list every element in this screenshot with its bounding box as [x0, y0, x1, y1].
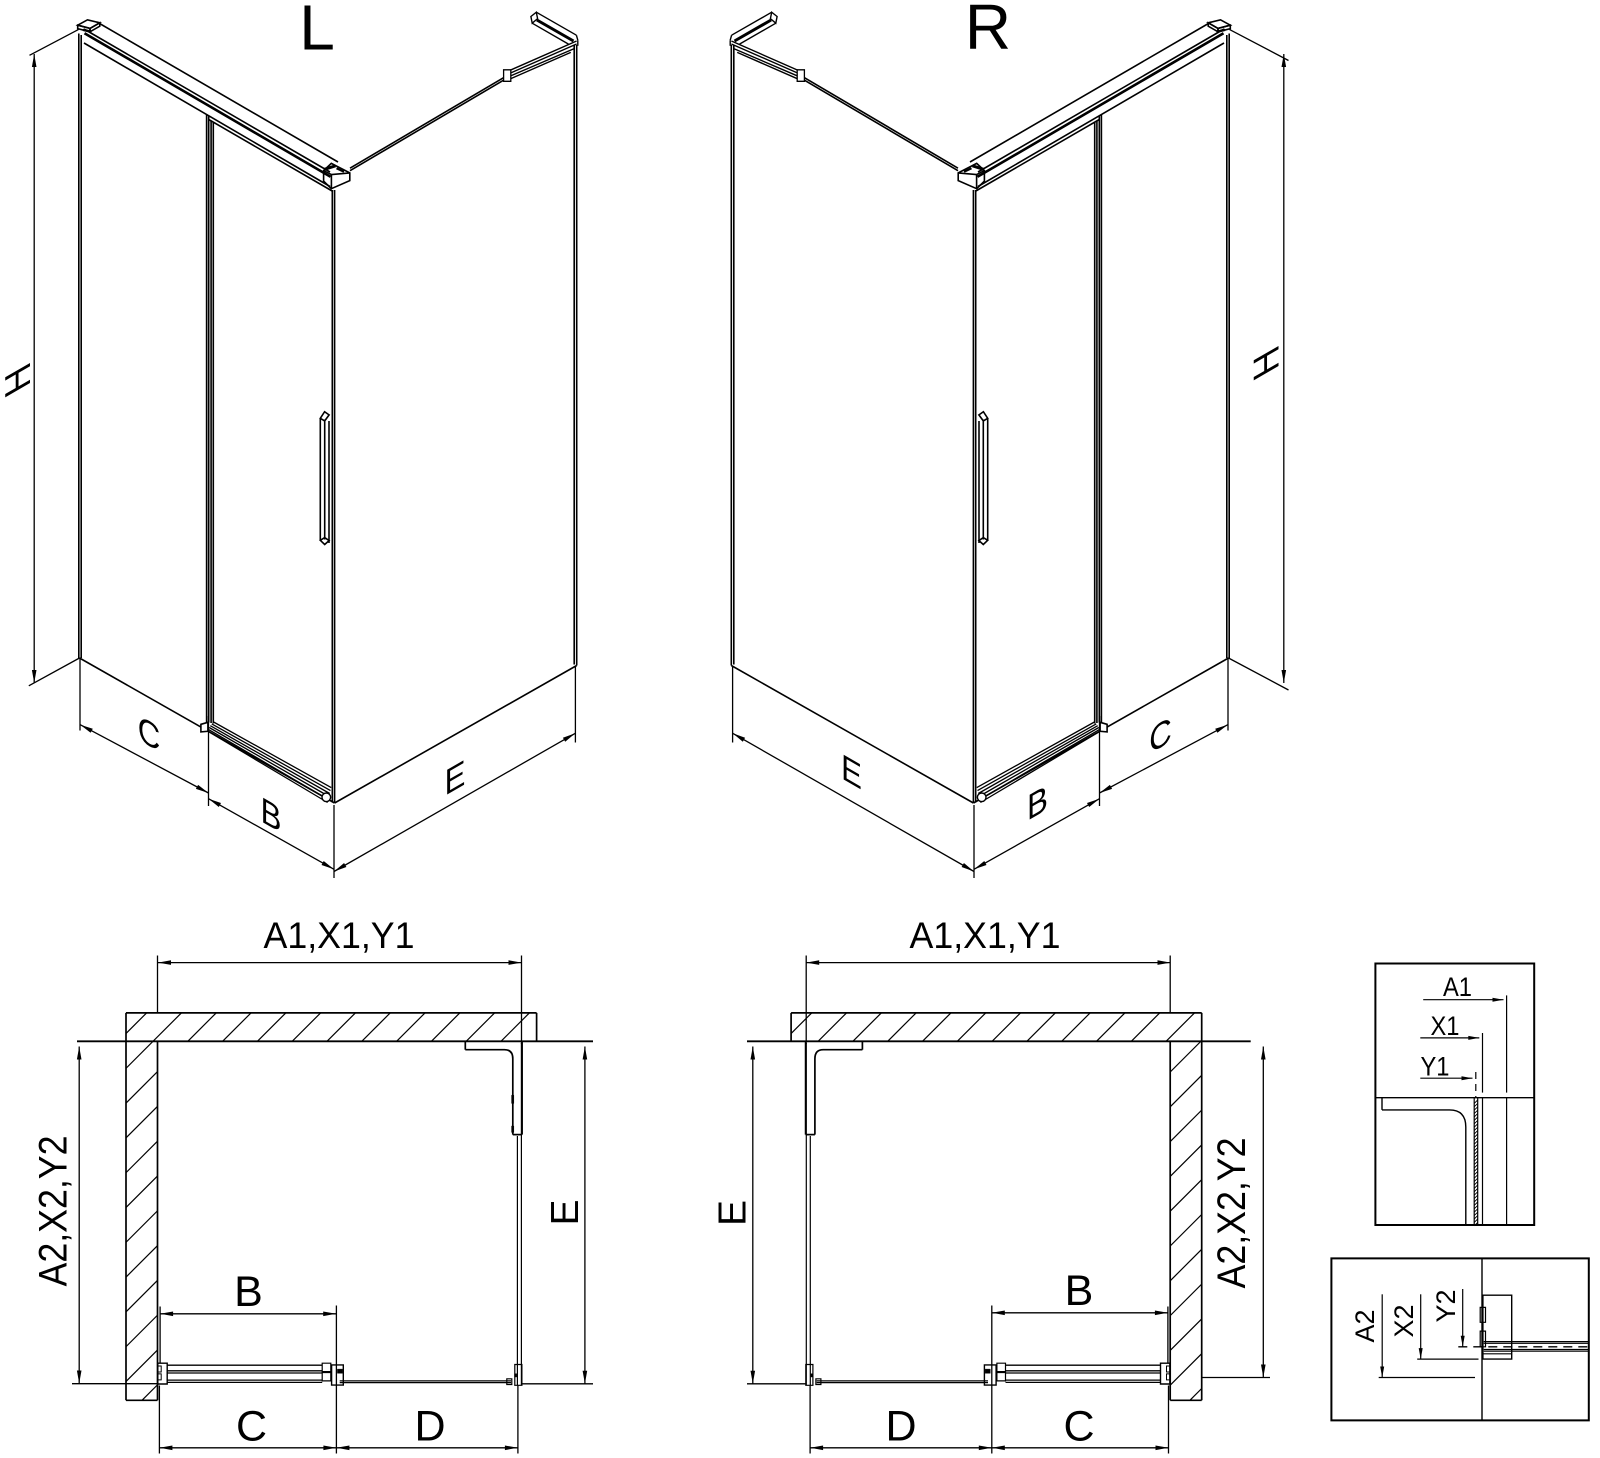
- svg-text:A2: A2: [1350, 1310, 1380, 1343]
- svg-text:D: D: [885, 1402, 916, 1450]
- svg-text:R: R: [965, 0, 1011, 63]
- svg-text:Y1: Y1: [1421, 1051, 1450, 1081]
- svg-text:C: C: [1063, 1402, 1094, 1450]
- svg-text:L: L: [299, 0, 335, 63]
- svg-text:X1: X1: [1431, 1011, 1460, 1041]
- svg-text:B: B: [234, 1268, 263, 1316]
- svg-text:A1,X1,Y1: A1,X1,Y1: [910, 915, 1061, 956]
- svg-text:A1,X1,Y1: A1,X1,Y1: [264, 915, 415, 956]
- svg-text:A2,X2,Y2: A2,X2,Y2: [1210, 1138, 1254, 1289]
- svg-text:C: C: [236, 1402, 267, 1450]
- svg-text:Y2: Y2: [1431, 1290, 1461, 1323]
- svg-text:E: E: [544, 1199, 587, 1225]
- svg-text:B: B: [1065, 1267, 1094, 1315]
- svg-text:D: D: [414, 1402, 445, 1450]
- svg-text:X2: X2: [1389, 1305, 1419, 1338]
- svg-text:A2,X2,Y2: A2,X2,Y2: [32, 1136, 76, 1287]
- svg-text:E: E: [712, 1200, 755, 1226]
- svg-text:A1: A1: [1443, 972, 1472, 1002]
